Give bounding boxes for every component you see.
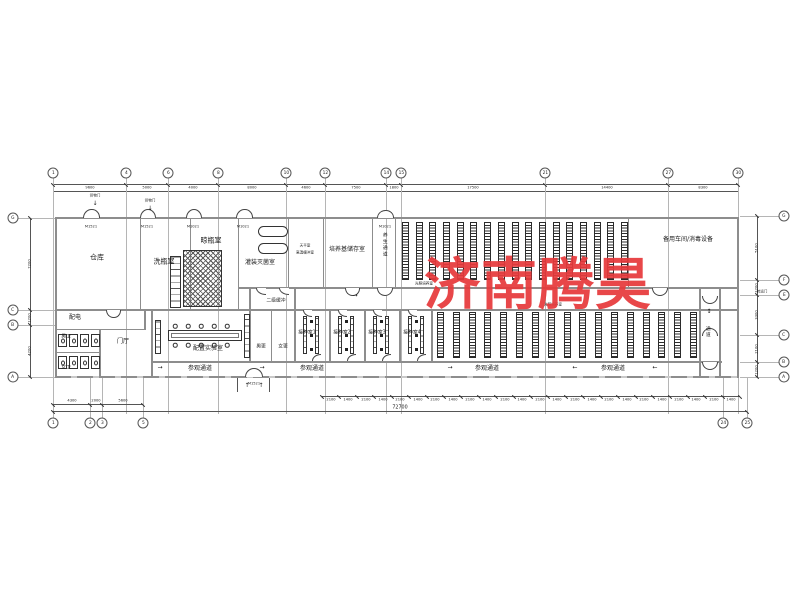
dimension-tick — [28, 375, 32, 379]
dimension-label: 1400 — [657, 398, 666, 402]
door-swing-icon — [236, 209, 253, 218]
grid-line — [325, 178, 326, 414]
room-label-inoculation-3: 接种室3 — [368, 330, 385, 335]
door-tag: M1521 — [141, 225, 153, 229]
dimension-label: 4600 — [301, 186, 310, 190]
room-label-hot-buffer: 高温缓冲室 — [296, 251, 314, 255]
dimension-label: 5000 — [142, 186, 151, 190]
cultivation-rack — [500, 312, 507, 358]
cultivation-rack — [484, 312, 491, 358]
dimension-label: 5100 — [755, 243, 759, 252]
door-swing-icon — [652, 288, 668, 296]
grid-bubble: 15 — [396, 168, 407, 179]
wall-bottom — [55, 376, 739, 378]
room-label-side-corridor: 通道 — [704, 326, 709, 339]
dimension-label: 2100 — [326, 398, 335, 402]
cultivation-rack — [690, 312, 697, 358]
dimension-label: 1400 — [553, 398, 562, 402]
door-swing-icon — [382, 354, 391, 361]
grid-bubble: G — [779, 211, 790, 222]
door-swing-icon — [312, 354, 321, 361]
room-label-power-room: 配电 — [69, 315, 81, 321]
room-label-secondary-buffer: 二级缓冲 — [266, 298, 285, 303]
grid-bubble: 6 — [163, 168, 174, 179]
grid-bubble: F — [779, 275, 790, 286]
wall-partition — [294, 287, 295, 362]
stool-icon — [310, 348, 313, 351]
grid-line — [740, 216, 779, 217]
grid-bubble: C — [779, 330, 790, 341]
arrow-down-icon: ↓ — [92, 201, 97, 207]
dimension-label: 7500 — [351, 186, 360, 190]
dimension-label: 2100 — [570, 398, 579, 402]
door-tag: M1521 — [85, 225, 97, 229]
porch-line — [269, 377, 270, 392]
dimension-tick — [633, 394, 637, 398]
dimension-label: 1400 — [483, 398, 492, 402]
dimension-label: 5600 — [118, 399, 127, 403]
door-swing-icon — [702, 362, 718, 370]
arrow-left-icon: ← — [652, 365, 657, 371]
locker-strip — [244, 314, 250, 358]
dimension-tick — [28, 216, 32, 220]
drying-crate-area — [183, 250, 222, 307]
room-label-balance-room: 天平室 — [300, 244, 311, 248]
grid-bubble: B — [779, 357, 790, 368]
cultivation-rack — [674, 312, 681, 358]
cultivation-rack — [595, 312, 602, 358]
dimension-label: 1400 — [692, 398, 701, 402]
room-label-inoculation-2: 接种室2 — [333, 330, 350, 335]
dimension-line — [53, 191, 738, 192]
cultivation-rack — [416, 222, 423, 280]
room-label-mens-toilet: 男卫 — [61, 334, 71, 339]
wall-inoculation — [399, 309, 400, 362]
toilet-icon — [72, 360, 76, 365]
grid-bubble: 1 — [48, 418, 59, 429]
grid-line — [143, 378, 144, 418]
grid-line — [18, 310, 55, 311]
door-tag: M1021 — [237, 225, 249, 229]
dimension-tick — [599, 394, 603, 398]
door-swing-icon — [347, 354, 356, 361]
room-label-womens-toilet: 女卫 — [61, 365, 71, 370]
chair-icon — [186, 324, 191, 329]
dimension-tick — [755, 375, 759, 379]
door-tag: M1021 — [187, 225, 199, 229]
dimension-label: 1400 — [518, 398, 527, 402]
dimension-label: 2100 — [755, 344, 759, 353]
dimension-label: 1400 — [587, 398, 596, 402]
autoclave-icon — [258, 243, 288, 254]
stool-icon — [380, 348, 383, 351]
toilet-icon — [83, 360, 87, 365]
room-label-visitor-corridor: 参观通道 — [601, 366, 625, 372]
dimension-label: 2100 — [605, 398, 614, 402]
annotation-cargo-door: 货物门 — [145, 199, 156, 203]
room-label-visitor-corridor: 参观通道 — [300, 366, 324, 372]
dimension-label: 9600 — [85, 186, 94, 190]
grid-line — [740, 377, 779, 378]
door-swing-icon — [377, 210, 394, 218]
room-label-visitor-corridor: 参观通道 — [475, 366, 499, 372]
wall-power-room — [144, 309, 145, 330]
door-swing-icon — [702, 296, 718, 304]
grid-bubble: 27 — [663, 168, 674, 179]
dimension-tick — [424, 394, 428, 398]
room-label-inoculation-4: 接种室4 — [403, 330, 420, 335]
grid-bubble: 25 — [742, 418, 753, 429]
room-label-bottle-drying: 晾瓶室 — [201, 237, 222, 244]
stool-icon — [310, 320, 313, 323]
cultivation-rack — [658, 312, 665, 358]
grid-bubble: 14 — [381, 168, 392, 179]
dimension-tick — [28, 323, 32, 327]
grid-bubble: E — [779, 290, 790, 301]
dimension-label: 1400 — [413, 398, 422, 402]
dimension-label: 1400 — [448, 398, 457, 402]
floor-plan-drawing: 仓库 洗瓶室 晾瓶室 灌装灭菌室 天平室 高温缓冲室 培养基储存室 养生通道 光… — [0, 0, 800, 600]
wall-changing-divider — [271, 309, 272, 362]
grid-bubble: 30 — [733, 168, 744, 179]
grid-bubble: C — [8, 305, 19, 316]
toilet-icon — [94, 338, 98, 343]
cultivation-rack — [516, 312, 523, 358]
room-label-medium-storage: 培养基储存室 — [329, 247, 365, 253]
toilet-icon — [72, 338, 76, 343]
wall-partition — [238, 217, 240, 310]
stool-icon — [415, 320, 418, 323]
wall-top — [55, 217, 739, 219]
dimension-label: 2000 — [91, 399, 100, 403]
grid-bubble: A — [8, 372, 19, 383]
grid-line — [740, 335, 779, 336]
dimension-label: 8000 — [247, 186, 256, 190]
stool-icon — [380, 320, 383, 323]
room-label-curing-corridor: 养生通道 — [381, 232, 386, 258]
dimension-label: 2100 — [709, 398, 718, 402]
grid-bubble: 12 — [320, 168, 331, 179]
dimension-label: 17500 — [467, 186, 478, 190]
dimension-label: 2100 — [535, 398, 544, 402]
chair-icon — [199, 324, 204, 329]
dimension-label: 2100 — [361, 398, 370, 402]
room-label-visitor-corridor: 参观通道 — [188, 366, 212, 372]
dimension-label: 1400 — [378, 398, 387, 402]
dimension-label: 2100 — [674, 398, 683, 402]
dimension-label: 4200 — [28, 346, 32, 355]
wall-partition — [323, 217, 325, 288]
door-tag: M1021 — [379, 225, 391, 229]
dimension-tick — [755, 333, 759, 337]
grid-bubble: 8 — [213, 168, 224, 179]
grid-bubble: 4 — [121, 168, 132, 179]
grid-bubble: 24 — [718, 418, 729, 429]
grid-bubble: 5 — [138, 418, 149, 429]
dimension-label: 1200 — [755, 365, 759, 374]
cultivation-rack — [453, 312, 460, 358]
dimension-label: 1400 — [727, 398, 736, 402]
grid-line — [740, 295, 779, 296]
arrow-updown-icon: ↕ — [706, 309, 711, 315]
door-swing-icon — [106, 310, 121, 318]
wall-partition — [372, 217, 374, 288]
dimension-label: 2100 — [431, 398, 440, 402]
cultivation-rack — [402, 222, 409, 280]
cultivation-rack — [627, 312, 634, 358]
door-swing-icon — [377, 288, 393, 296]
dimension-label: 1400 — [344, 398, 353, 402]
dimension-tick — [720, 394, 724, 398]
door-swing-icon — [83, 209, 100, 218]
dimension-label: 1200 — [755, 283, 759, 292]
wall-toilet-divider — [55, 352, 100, 353]
room-label-mens-changing: 男更 — [256, 344, 266, 349]
dimension-label: 1200 — [28, 313, 32, 322]
dimension-label: 4300 — [67, 399, 76, 403]
dimension-tick — [755, 360, 759, 364]
cultivation-rack — [532, 312, 539, 358]
cultivation-rack — [437, 312, 444, 358]
wall-partition — [140, 217, 142, 310]
grid-bubble: 1 — [48, 168, 59, 179]
stool-icon — [345, 348, 348, 351]
arrow-left-icon: ← — [572, 365, 577, 371]
dimension-label: 8300 — [698, 186, 707, 190]
arrow-right-icon: → — [157, 365, 162, 371]
room-label-prep-lab: 配置实验室 — [193, 346, 223, 352]
grid-bubble: B — [8, 320, 19, 331]
chair-icon — [225, 343, 230, 348]
arrow-down-icon: ↓ — [147, 206, 152, 212]
door-swing-icon — [256, 288, 266, 295]
wall-left — [55, 217, 57, 377]
autoclave-icon — [258, 226, 288, 237]
arrow-right-icon: → — [447, 365, 452, 371]
cultivation-rack — [643, 312, 650, 358]
chair-icon — [212, 324, 217, 329]
wall-right — [737, 217, 739, 377]
grid-bubble: A — [779, 372, 790, 383]
dimension-tick — [28, 308, 32, 312]
room-label-bottle-washing: 洗瓶室 — [154, 258, 175, 265]
room-label-warehouse: 仓库 — [90, 254, 104, 261]
chair-icon — [186, 343, 191, 348]
red-watermark: 济南腾昊 — [424, 254, 652, 318]
dimension-label: 14400 — [601, 186, 612, 190]
arrow-up-icon: ↑ — [244, 383, 249, 389]
chair-icon — [173, 324, 178, 329]
stool-icon — [345, 320, 348, 323]
dimension-label: 2100 — [465, 398, 474, 402]
wall-inoculation — [364, 309, 365, 362]
dimension-label: 7200 — [28, 259, 32, 268]
room-label-entrance-hall: 门厅 — [117, 339, 129, 345]
toilet-icon — [83, 338, 87, 343]
wall-hall — [151, 309, 152, 377]
grid-line — [740, 362, 779, 363]
door-swing-icon — [279, 288, 289, 295]
lab-bench — [168, 330, 242, 341]
grid-bubble: 21 — [540, 168, 551, 179]
arrow-up-icon: ↑ — [258, 383, 263, 389]
dimension-label: 2100 — [640, 398, 649, 402]
grid-line — [18, 377, 55, 378]
dimension-label: 2100 — [500, 398, 509, 402]
arrow-right-icon: → — [259, 365, 264, 371]
cultivation-rack — [579, 312, 586, 358]
grid-line — [168, 178, 169, 414]
cultivation-rack — [469, 312, 476, 358]
chair-icon — [225, 324, 230, 329]
grid-bubble: 2 — [85, 418, 96, 429]
grid-bubble: G — [8, 213, 19, 224]
annotation-cargo-door: 货物门 — [90, 194, 101, 198]
grid-line — [126, 178, 127, 414]
grid-bubble: 10 — [281, 168, 292, 179]
dimension-line — [53, 404, 143, 405]
grid-line — [18, 325, 55, 326]
grid-bubble: 3 — [97, 418, 108, 429]
toilet-icon — [94, 360, 98, 365]
wall-partition — [288, 217, 290, 288]
wall-partition — [395, 217, 397, 288]
wall-side-corridor — [719, 287, 720, 377]
cultivation-rack — [548, 312, 555, 358]
dimension-tick — [511, 394, 515, 398]
arrow-right-icon: → — [352, 293, 357, 299]
dimension-label: 72700 — [392, 405, 407, 410]
grid-line — [668, 178, 669, 414]
dimension-label: 1800 — [389, 186, 398, 190]
wall-corridor-lower — [152, 361, 722, 363]
grid-line — [102, 378, 103, 418]
cultivation-rack — [564, 312, 571, 358]
dimension-label: 3300 — [755, 310, 759, 319]
cultivation-rack — [611, 312, 618, 358]
chair-icon — [173, 343, 178, 348]
dimension-label: 2100 — [396, 398, 405, 402]
grid-line — [401, 178, 402, 414]
dimension-tick — [755, 214, 759, 218]
dimension-line — [53, 411, 747, 412]
room-label-filling-sterilizing: 灌装灭菌室 — [245, 260, 275, 266]
dimension-label: 1400 — [622, 398, 631, 402]
dimension-label: 4000 — [188, 186, 197, 190]
room-label-inoculation-1: 接种室1 — [298, 330, 315, 335]
room-label-spare-workshop: 备用车间/消毒设备 — [663, 237, 713, 243]
wall-inoculation — [329, 309, 330, 362]
grid-line — [740, 280, 779, 281]
stool-icon — [415, 348, 418, 351]
porch-line — [237, 377, 238, 392]
grid-line — [286, 178, 287, 414]
dimension-tick — [390, 394, 394, 398]
wall-side-corridor — [699, 287, 700, 377]
lab-equipment-shelf — [155, 320, 161, 354]
grid-line — [18, 218, 55, 219]
dimension-tick — [755, 278, 759, 282]
door-swing-icon — [417, 354, 426, 361]
door-swing-icon — [186, 209, 202, 218]
room-label-womens-changing: 女更 — [278, 344, 288, 349]
